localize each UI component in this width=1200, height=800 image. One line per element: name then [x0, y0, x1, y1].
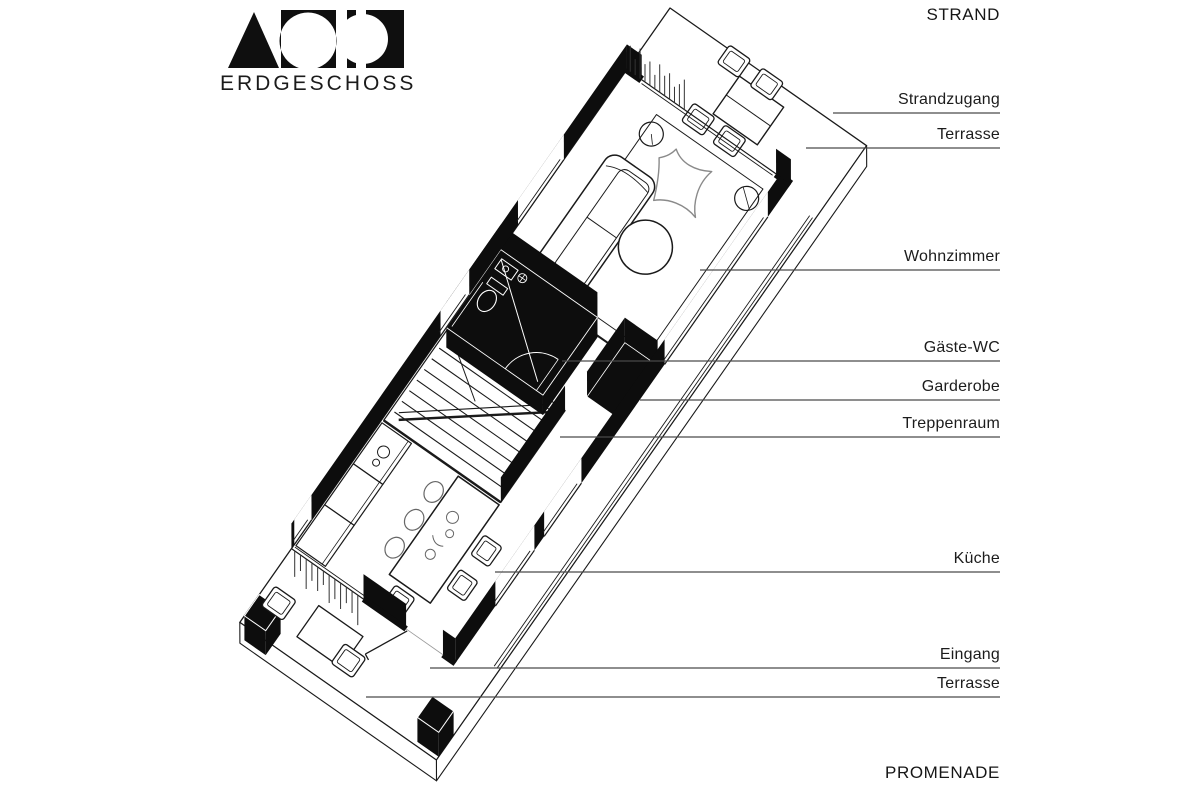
floor-plan-drawing [0, 0, 1200, 800]
annotation-label: Küche [954, 550, 1000, 568]
annotation-label: Eingang [940, 646, 1000, 664]
context-label-strand: STRAND [927, 5, 1001, 25]
annotation-label: Garderobe [922, 378, 1000, 396]
annotation-label: Wohnzimmer [904, 248, 1000, 266]
void-logo-mark [220, 10, 420, 68]
annotation-label: Terrasse [937, 675, 1000, 693]
annotation-label: Terrasse [937, 126, 1000, 144]
annotation-label: Treppenraum [902, 415, 1000, 433]
floor-plan-page: ERDGESCHOSS STRAND PROMENADE Strandzugan… [0, 0, 1200, 800]
context-label-promenade: PROMENADE [885, 763, 1000, 783]
annotation-label: Strandzugang [898, 91, 1000, 109]
logo-letter-o [280, 10, 337, 68]
annotation-label: Gäste-WC [924, 339, 1000, 357]
logo-letter-v [228, 12, 279, 68]
drawing-title: ERDGESCHOSS [220, 72, 416, 96]
